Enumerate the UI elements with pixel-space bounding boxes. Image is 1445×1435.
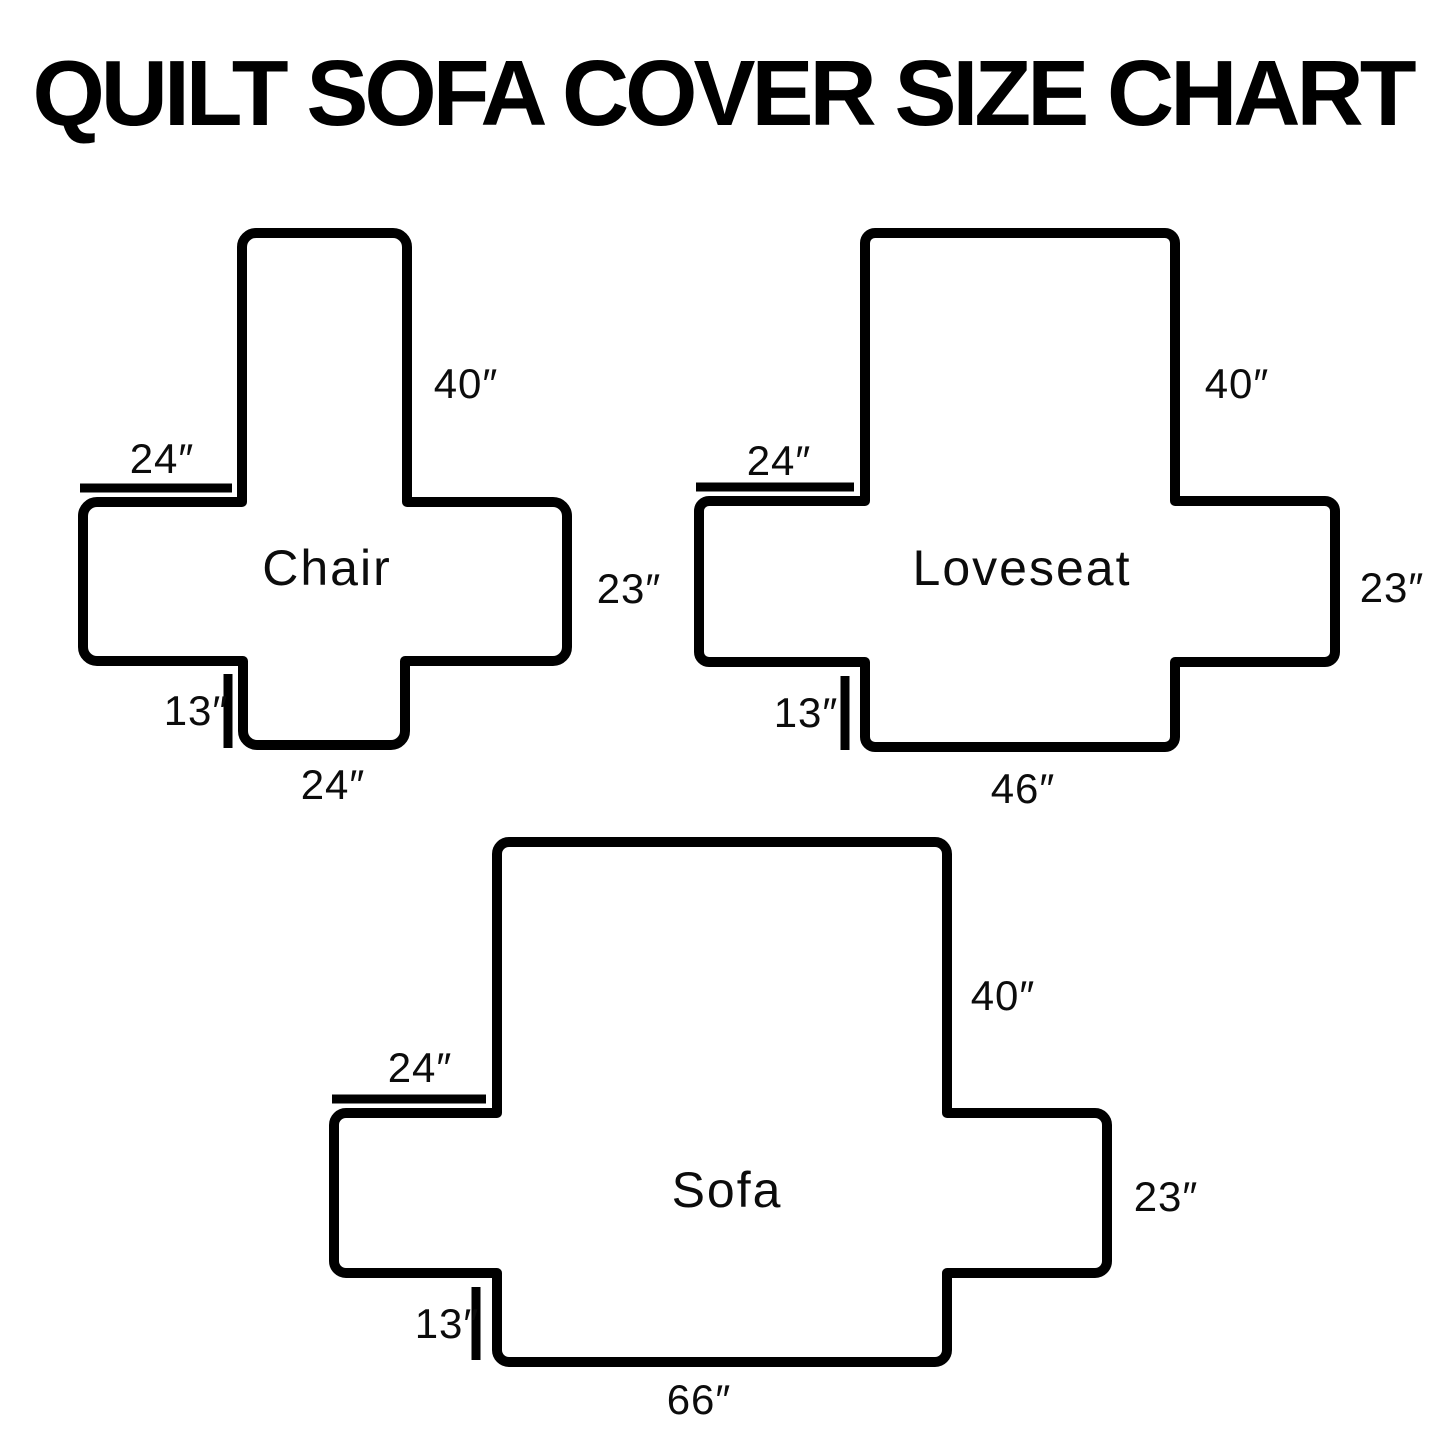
size-chart-diagram xyxy=(0,0,1445,1435)
size-chart-page: QUILT SOFA COVER SIZE CHART Chair 40″ 24… xyxy=(0,0,1445,1435)
